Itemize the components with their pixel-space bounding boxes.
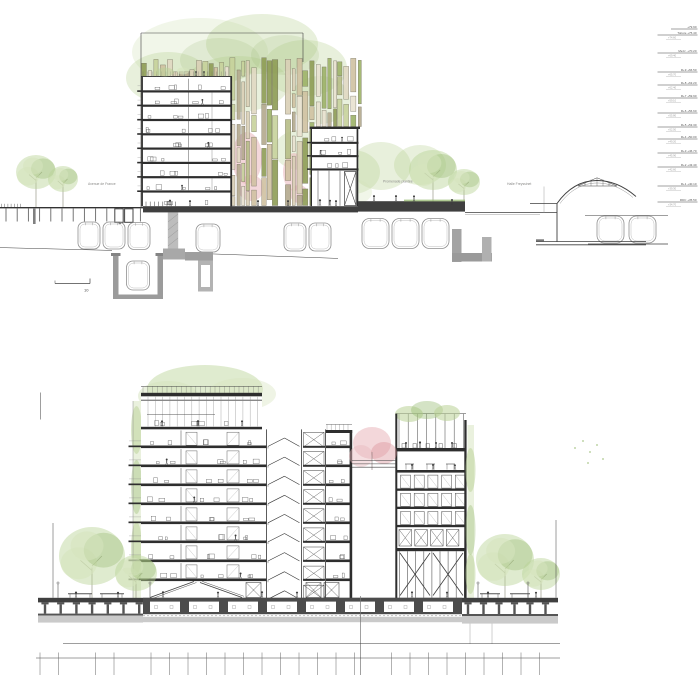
person-figure bbox=[535, 592, 537, 598]
storage-tank bbox=[103, 222, 125, 249]
level-marker: R+5 +53.30+52.50 bbox=[658, 123, 698, 132]
level-label: R+5 +53.30 bbox=[681, 123, 697, 127]
level-marker: R+1 +40.10+39.30 bbox=[658, 182, 698, 191]
storage-tank bbox=[309, 223, 331, 251]
level-sub-elevation: +39.30 bbox=[668, 187, 677, 191]
person-figure bbox=[373, 195, 375, 201]
section-drawing: 10 +79.90Toiture +75.40+74.60Mezz. +70.2… bbox=[0, 0, 700, 675]
person-figure bbox=[487, 592, 489, 598]
level-label: RDC +35.50 bbox=[680, 198, 697, 202]
tree bbox=[48, 166, 78, 208]
level-sub-elevation: +55.80 bbox=[668, 114, 677, 118]
storage-tank bbox=[392, 219, 419, 249]
level-sub-elevation: +34.70 bbox=[668, 203, 677, 207]
person-figure bbox=[419, 441, 421, 448]
storage-tank bbox=[422, 219, 449, 249]
storage-tank bbox=[196, 224, 220, 252]
level-label: R+8 +63.20 bbox=[681, 81, 697, 85]
halle-freyssinet-label: Halle Freyssinet bbox=[507, 182, 531, 186]
level-sub-elevation: +49.20 bbox=[668, 140, 677, 144]
level-label: Toiture +75.40 bbox=[677, 31, 696, 35]
level-marker: R+6 +56.60+55.80 bbox=[658, 109, 698, 118]
level-label: R+4 +50.00 bbox=[681, 135, 697, 139]
ground-and-basement bbox=[38, 598, 558, 644]
level-marker: Mezz. +70.20+69.40 bbox=[658, 49, 698, 58]
level-marker: +79.90 bbox=[671, 25, 698, 29]
person-figure bbox=[257, 200, 259, 206]
level-marker: RDC +35.50+34.70 bbox=[658, 198, 698, 207]
level-sub-elevation: +62.40 bbox=[668, 86, 677, 90]
level-label: R+2 +43.40 bbox=[681, 163, 697, 167]
storage-tank bbox=[597, 216, 624, 243]
pink-blossom-tree bbox=[349, 427, 397, 470]
person-figure bbox=[75, 592, 77, 598]
person-figure bbox=[395, 195, 397, 201]
level-marker: R+2 +43.40+42.60 bbox=[658, 163, 698, 172]
level-sub-elevation: +69.40 bbox=[668, 54, 677, 58]
storage-tank bbox=[629, 216, 656, 243]
storage-tank bbox=[128, 223, 150, 250]
scale-value-label: 10 bbox=[84, 288, 89, 293]
right-building-section bbox=[395, 401, 476, 598]
level-sub-elevation: +45.90 bbox=[668, 154, 677, 158]
level-label: R+3 +46.70 bbox=[681, 149, 697, 153]
person-figure bbox=[451, 442, 453, 448]
level-marker: R+3 +46.70+45.90 bbox=[658, 149, 698, 158]
level-sub-elevation: +74.60 bbox=[668, 36, 677, 40]
level-label: Mezz. +70.20 bbox=[678, 49, 696, 53]
level-label: R+7 +59.90 bbox=[681, 94, 697, 98]
level-marker: R+8 +63.20+62.40 bbox=[658, 81, 698, 90]
level-label: R+9 +66.50 bbox=[681, 68, 697, 72]
cut-floors-right-tower bbox=[307, 127, 360, 207]
tree bbox=[59, 527, 125, 599]
upper-section-drawing: 10 +79.90Toiture +75.40+74.60Mezz. +70.2… bbox=[0, 14, 698, 299]
level-marker: Toiture +75.40+74.60 bbox=[658, 31, 698, 40]
storage-tank bbox=[284, 223, 306, 251]
level-sub-elevation: +59.10 bbox=[668, 99, 677, 103]
level-sub-elevation: +42.60 bbox=[668, 168, 677, 172]
level-label: +79.90 bbox=[687, 25, 697, 29]
level-sub-elevation: +65.70 bbox=[668, 73, 677, 77]
scale-bar: 10 bbox=[55, 279, 90, 293]
lower-section-drawing bbox=[36, 365, 604, 675]
architectural-section-sheet: 10 +79.90Toiture +75.40+74.60Mezz. +70.2… bbox=[0, 0, 700, 675]
cut-floors-left-tower bbox=[137, 68, 232, 207]
level-marker: R+4 +50.00+49.20 bbox=[658, 135, 698, 144]
promenade-plantee-label: Promenade plantée bbox=[383, 180, 413, 184]
avenue-de-france-label: Avenue de France bbox=[88, 182, 116, 186]
level-marker: R+9 +66.50+65.70 bbox=[658, 68, 698, 77]
level-sub-elevation: +52.50 bbox=[668, 128, 677, 132]
level-marker: R+7 +59.90+59.10 bbox=[658, 94, 698, 103]
level-label: R+6 +56.60 bbox=[681, 109, 697, 113]
level-markers: +79.90Toiture +75.40+74.60Mezz. +70.20+6… bbox=[658, 25, 698, 207]
storage-tank bbox=[362, 219, 389, 249]
storage-tank bbox=[78, 222, 100, 249]
person-figure bbox=[117, 592, 119, 598]
level-label: R+1 +40.10 bbox=[681, 182, 697, 186]
storage-tank bbox=[127, 261, 150, 290]
underground-structures bbox=[0, 213, 668, 300]
